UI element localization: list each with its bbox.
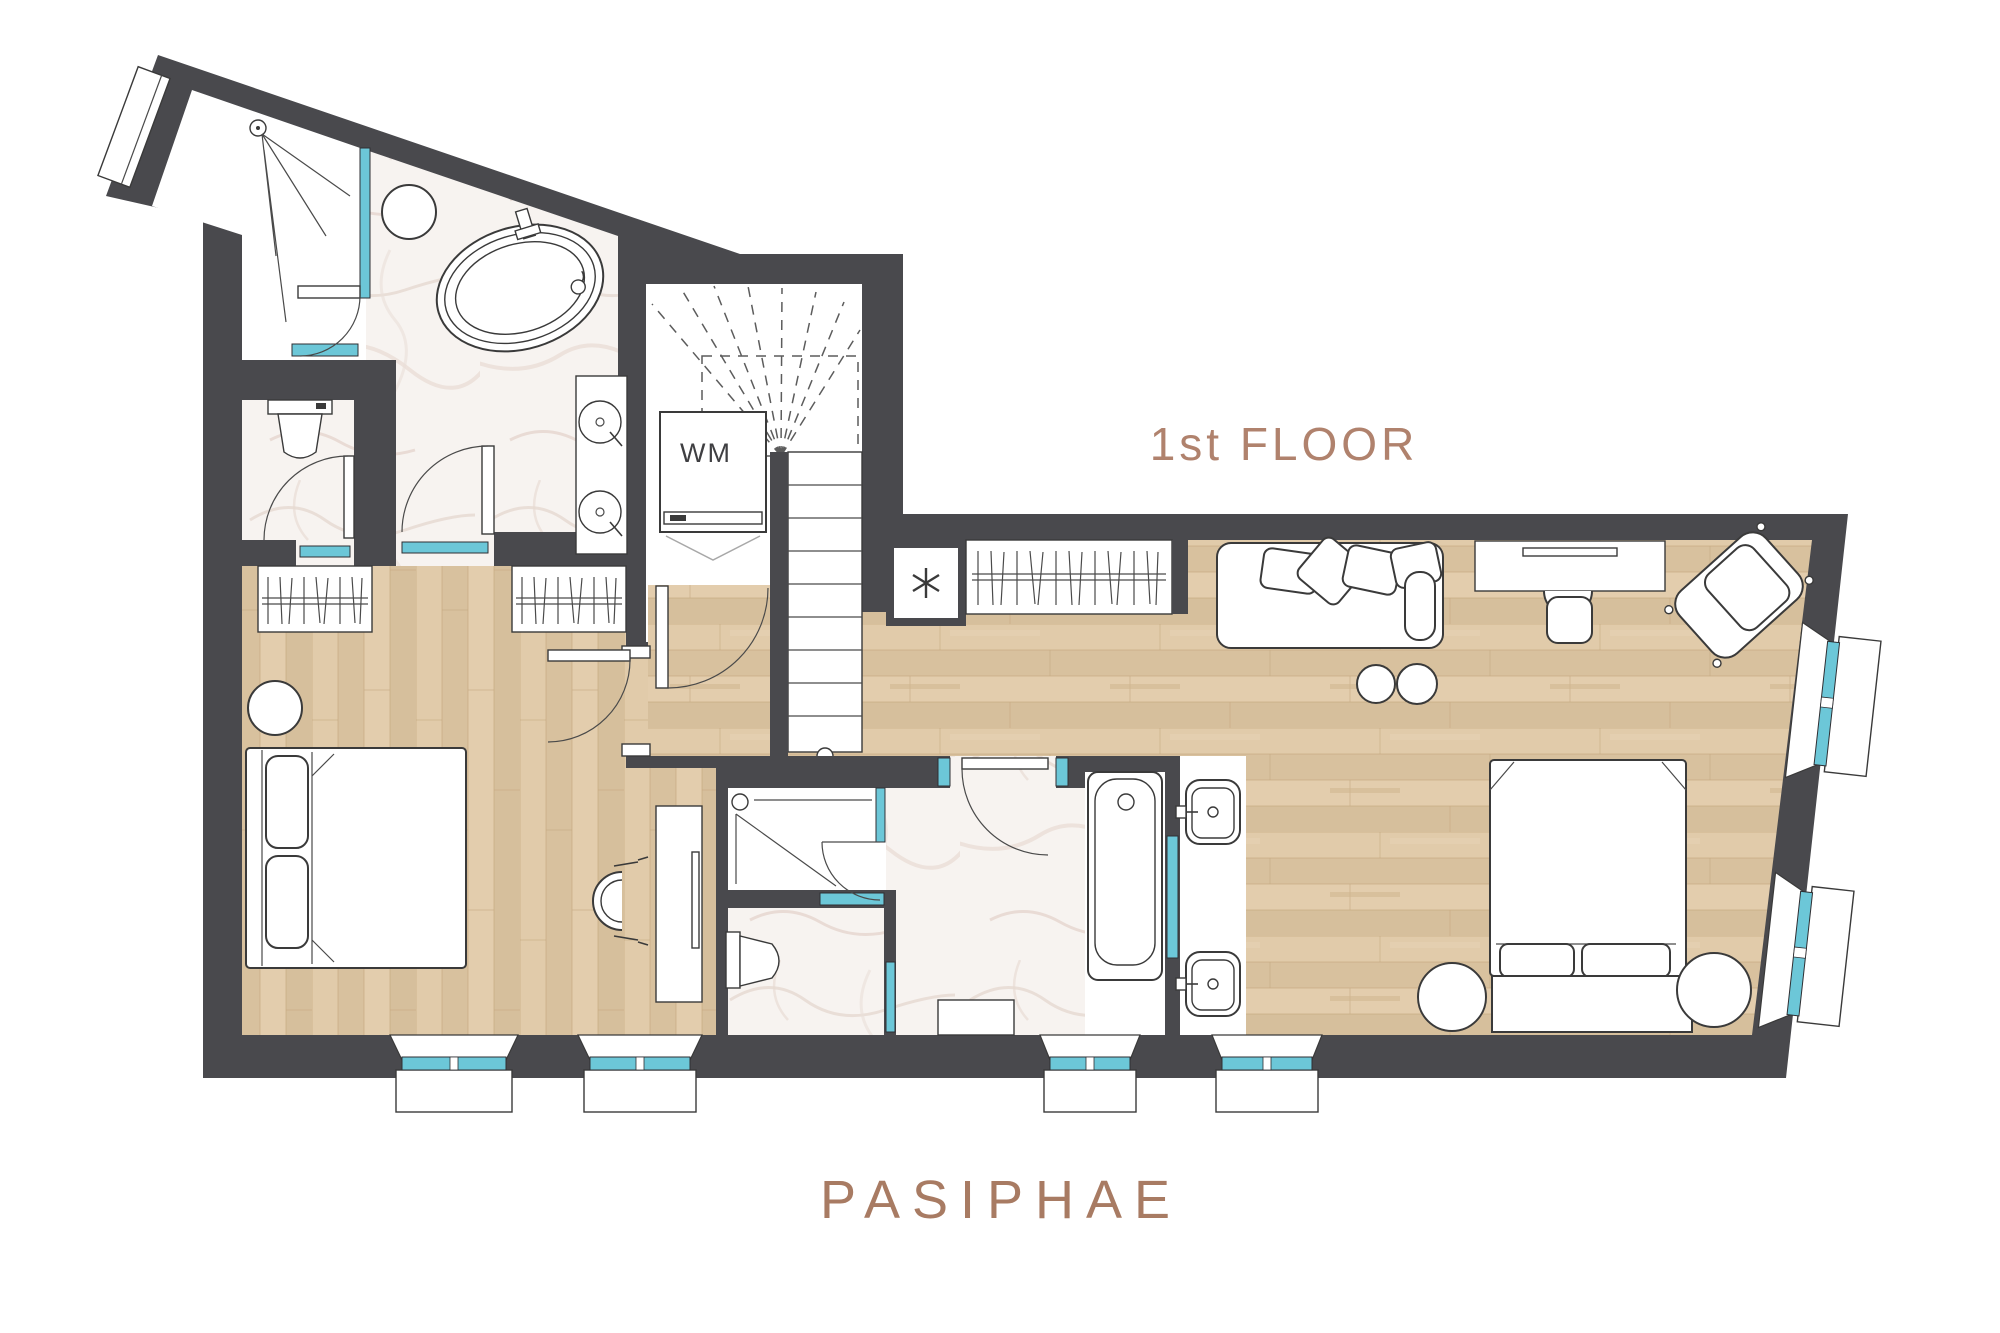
desk-monitor — [692, 852, 699, 948]
hall-wardrobe — [966, 540, 1172, 614]
double-bed — [246, 748, 466, 968]
ensuite-bathtub — [1088, 772, 1162, 980]
wc-door-threshold — [300, 546, 350, 557]
ensuite-door-leaf — [962, 758, 1048, 769]
wc-glass-strip — [886, 962, 895, 1032]
shower-glass-panel — [360, 148, 370, 298]
shower-door-threshold — [292, 344, 358, 356]
pouf — [1357, 665, 1395, 703]
stair-door-leaf — [656, 586, 668, 688]
square-stool — [1547, 597, 1592, 643]
pillow — [1582, 944, 1670, 977]
headboard — [1492, 976, 1692, 1032]
desk-monitor — [1523, 548, 1617, 556]
wardrobe — [258, 566, 372, 632]
shower-door-leaf — [298, 286, 360, 298]
shower-head-icon — [732, 794, 748, 810]
window — [1040, 1035, 1140, 1112]
stair-center-wall — [770, 452, 788, 758]
wall-stub — [1172, 540, 1188, 614]
bathroom-door-leaf — [482, 446, 494, 534]
window — [1758, 872, 1855, 1036]
pillow — [266, 756, 308, 848]
bathtub-drain — [1118, 794, 1134, 810]
washing-machine-label: WM — [680, 438, 732, 468]
window — [1212, 1035, 1322, 1112]
sofa — [1217, 534, 1443, 648]
hallway — [886, 540, 1188, 626]
wardrobe — [512, 566, 626, 632]
plan-title: PASIPHAE — [820, 1170, 1182, 1230]
shower-wc-glass — [820, 893, 884, 905]
window — [1785, 622, 1882, 786]
nightstand — [1418, 963, 1486, 1031]
stool — [382, 185, 436, 239]
shower-glass-panel — [876, 788, 885, 842]
sofa-bolster — [1405, 572, 1435, 640]
bath-mat — [938, 1000, 1014, 1035]
stair-treads — [788, 452, 862, 752]
nightstand — [1677, 953, 1751, 1027]
toilet-cistern — [726, 932, 740, 988]
pouf — [1397, 664, 1437, 704]
ensuite-bathroom — [726, 756, 1246, 1035]
bedroom-door-leaf — [548, 650, 630, 661]
double-bed — [1490, 760, 1692, 1032]
ensuite-shower-floor — [728, 788, 886, 890]
pillow — [266, 856, 308, 948]
window — [390, 1035, 518, 1112]
toilet-bowl — [278, 414, 322, 458]
floor-label: 1st FLOOR — [1150, 418, 1419, 470]
bathroom-door-threshold — [402, 542, 488, 553]
bathtub-glass-wall — [1167, 836, 1178, 958]
floor-plan-drawing: WM — [0, 0, 2000, 1333]
window — [578, 1035, 702, 1112]
wc-door-leaf — [344, 456, 354, 538]
side-table — [248, 681, 302, 735]
pillow — [1500, 944, 1574, 977]
floor-plan-page: WM — [0, 0, 2000, 1333]
